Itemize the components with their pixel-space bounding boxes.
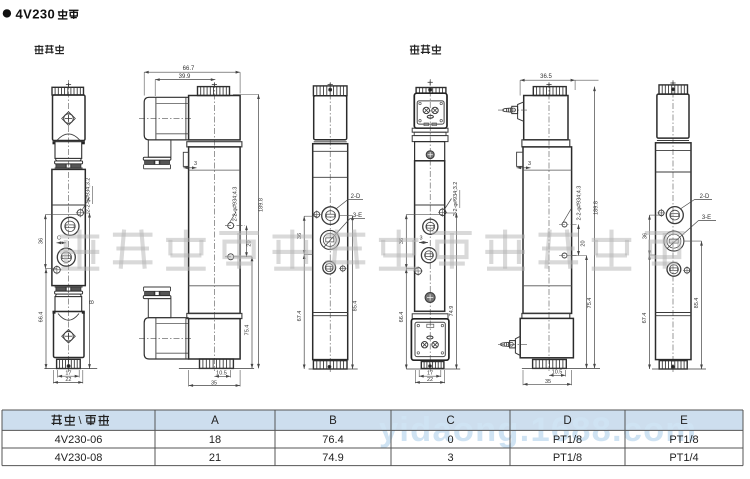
svg-text:39.9: 39.9 xyxy=(179,74,191,80)
svg-text:4V230: 4V230 xyxy=(16,7,56,22)
svg-text:76.4: 76.4 xyxy=(322,434,343,446)
svg-text:3: 3 xyxy=(419,236,422,242)
svg-text:66.4: 66.4 xyxy=(38,312,44,323)
svg-text:66.7: 66.7 xyxy=(183,66,195,72)
svg-text:74.9: 74.9 xyxy=(449,306,455,317)
svg-text:B: B xyxy=(90,300,96,304)
svg-text:189.8: 189.8 xyxy=(594,201,600,215)
svg-text:17: 17 xyxy=(427,371,433,377)
svg-text:2-2-φ#934;4.3: 2-2-φ#934;4.3 xyxy=(233,187,239,222)
svg-text:PT1/8: PT1/8 xyxy=(553,452,582,464)
svg-text:2-2-φ#934;3.2: 2-2-φ#934;3.2 xyxy=(86,178,92,213)
svg-text:20: 20 xyxy=(581,240,587,246)
svg-text:3: 3 xyxy=(447,452,453,464)
svg-text:67.4: 67.4 xyxy=(642,313,648,324)
svg-text:0: 0 xyxy=(447,434,453,446)
svg-text:4V230-06: 4V230-06 xyxy=(55,434,103,446)
svg-text:3: 3 xyxy=(528,161,531,167)
svg-text:17: 17 xyxy=(65,371,71,377)
svg-text:18: 18 xyxy=(209,434,221,446)
svg-text:B: B xyxy=(329,415,337,427)
svg-text:A: A xyxy=(211,415,219,427)
svg-text:36.5: 36.5 xyxy=(540,74,552,80)
svg-text:2-D: 2-D xyxy=(700,194,710,200)
svg-text:36: 36 xyxy=(38,238,44,244)
svg-text:75.4: 75.4 xyxy=(587,298,593,309)
svg-text:4V230-08: 4V230-08 xyxy=(55,452,103,464)
svg-text:3-E: 3-E xyxy=(702,215,711,221)
svg-text:75.4: 75.4 xyxy=(244,325,250,336)
svg-text:2-2-φ#934;3.2: 2-2-φ#934;3.2 xyxy=(453,182,459,217)
svg-text:2-D: 2-D xyxy=(351,194,361,200)
svg-text:66.4: 66.4 xyxy=(399,312,405,323)
svg-text:21: 21 xyxy=(209,452,221,464)
svg-text:E: E xyxy=(680,415,688,427)
svg-text:PT1/4: PT1/4 xyxy=(669,452,698,464)
svg-text:85.4: 85.4 xyxy=(352,301,358,312)
svg-text:PT1/8: PT1/8 xyxy=(669,434,698,446)
svg-text:3: 3 xyxy=(194,161,197,167)
svg-text:C: C xyxy=(446,415,454,427)
svg-text:2-2-φ#934;4.3: 2-2-φ#934;4.3 xyxy=(577,186,583,221)
svg-text:85.4: 85.4 xyxy=(694,298,700,309)
svg-text:PT1/8: PT1/8 xyxy=(553,434,582,446)
svg-text:3-E: 3-E xyxy=(353,213,362,219)
svg-text:67.4: 67.4 xyxy=(297,311,303,322)
svg-text:74.9: 74.9 xyxy=(322,452,343,464)
svg-text:D: D xyxy=(563,415,571,427)
svg-text:189.8: 189.8 xyxy=(259,198,265,212)
